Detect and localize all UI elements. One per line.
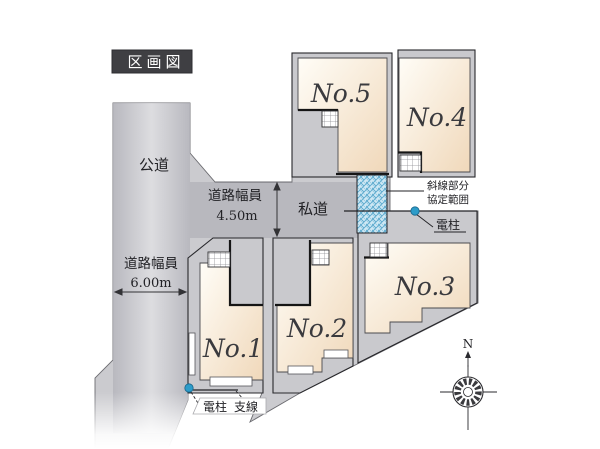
plat-map-page: 公道 私道 道路幅員 4.50m 道路幅員 6.00m 斜線部分 協定範囲 電柱… [0,0,600,449]
pole-bottom-label: 電柱 [203,399,227,414]
lot-5-number: No.5 [310,79,371,108]
parking-grid-lot1 [208,252,230,267]
title-block: 区画図 [112,50,192,73]
parking-grid-lot5 [322,111,338,127]
page-title: 区画図 [127,53,184,71]
fence-lot1 [189,333,195,375]
lot-2-number: No.2 [286,314,347,343]
public-width-value: 6.00m [130,276,171,291]
pole-right-label: 電柱 [436,217,460,232]
lot-3-number: No.3 [394,272,455,301]
utility-pole-dot-bottom [185,384,193,392]
porch-lot1 [210,377,252,386]
private-width-label: 道路幅員 [208,188,262,204]
parking-grid-lot2 [312,250,329,265]
road-fade-overlay [90,392,190,449]
porch-lot2a [324,350,348,358]
compass-inner-circle [464,388,473,397]
plat-map-svg: 公道 私道 道路幅員 4.50m 道路幅員 6.00m 斜線部分 協定範囲 電柱… [0,0,600,449]
compass-rose: N [440,337,497,430]
compass-north-arrow-head [465,351,471,358]
parking-grid-lot4 [400,155,421,171]
private-road-label: 私道 [298,200,328,218]
lot-4-number: No.4 [406,103,467,132]
public-width-label: 道路幅員 [124,256,178,272]
public-road-label: 公道 [139,156,169,174]
compass-north-label: N [463,337,474,351]
agreement-note-line2: 協定範囲 [427,193,469,206]
porch-lot2b [288,366,313,374]
utility-pole-dot-right [411,207,419,215]
lot-1-number: No.1 [202,334,263,363]
private-width-value: 4.50m [216,209,257,224]
parking-grid-lot3 [370,243,387,257]
agreement-hatch-area [357,175,387,233]
guy-wire-label: 支線 [234,399,258,414]
agreement-note-line1: 斜線部分 [427,179,469,192]
